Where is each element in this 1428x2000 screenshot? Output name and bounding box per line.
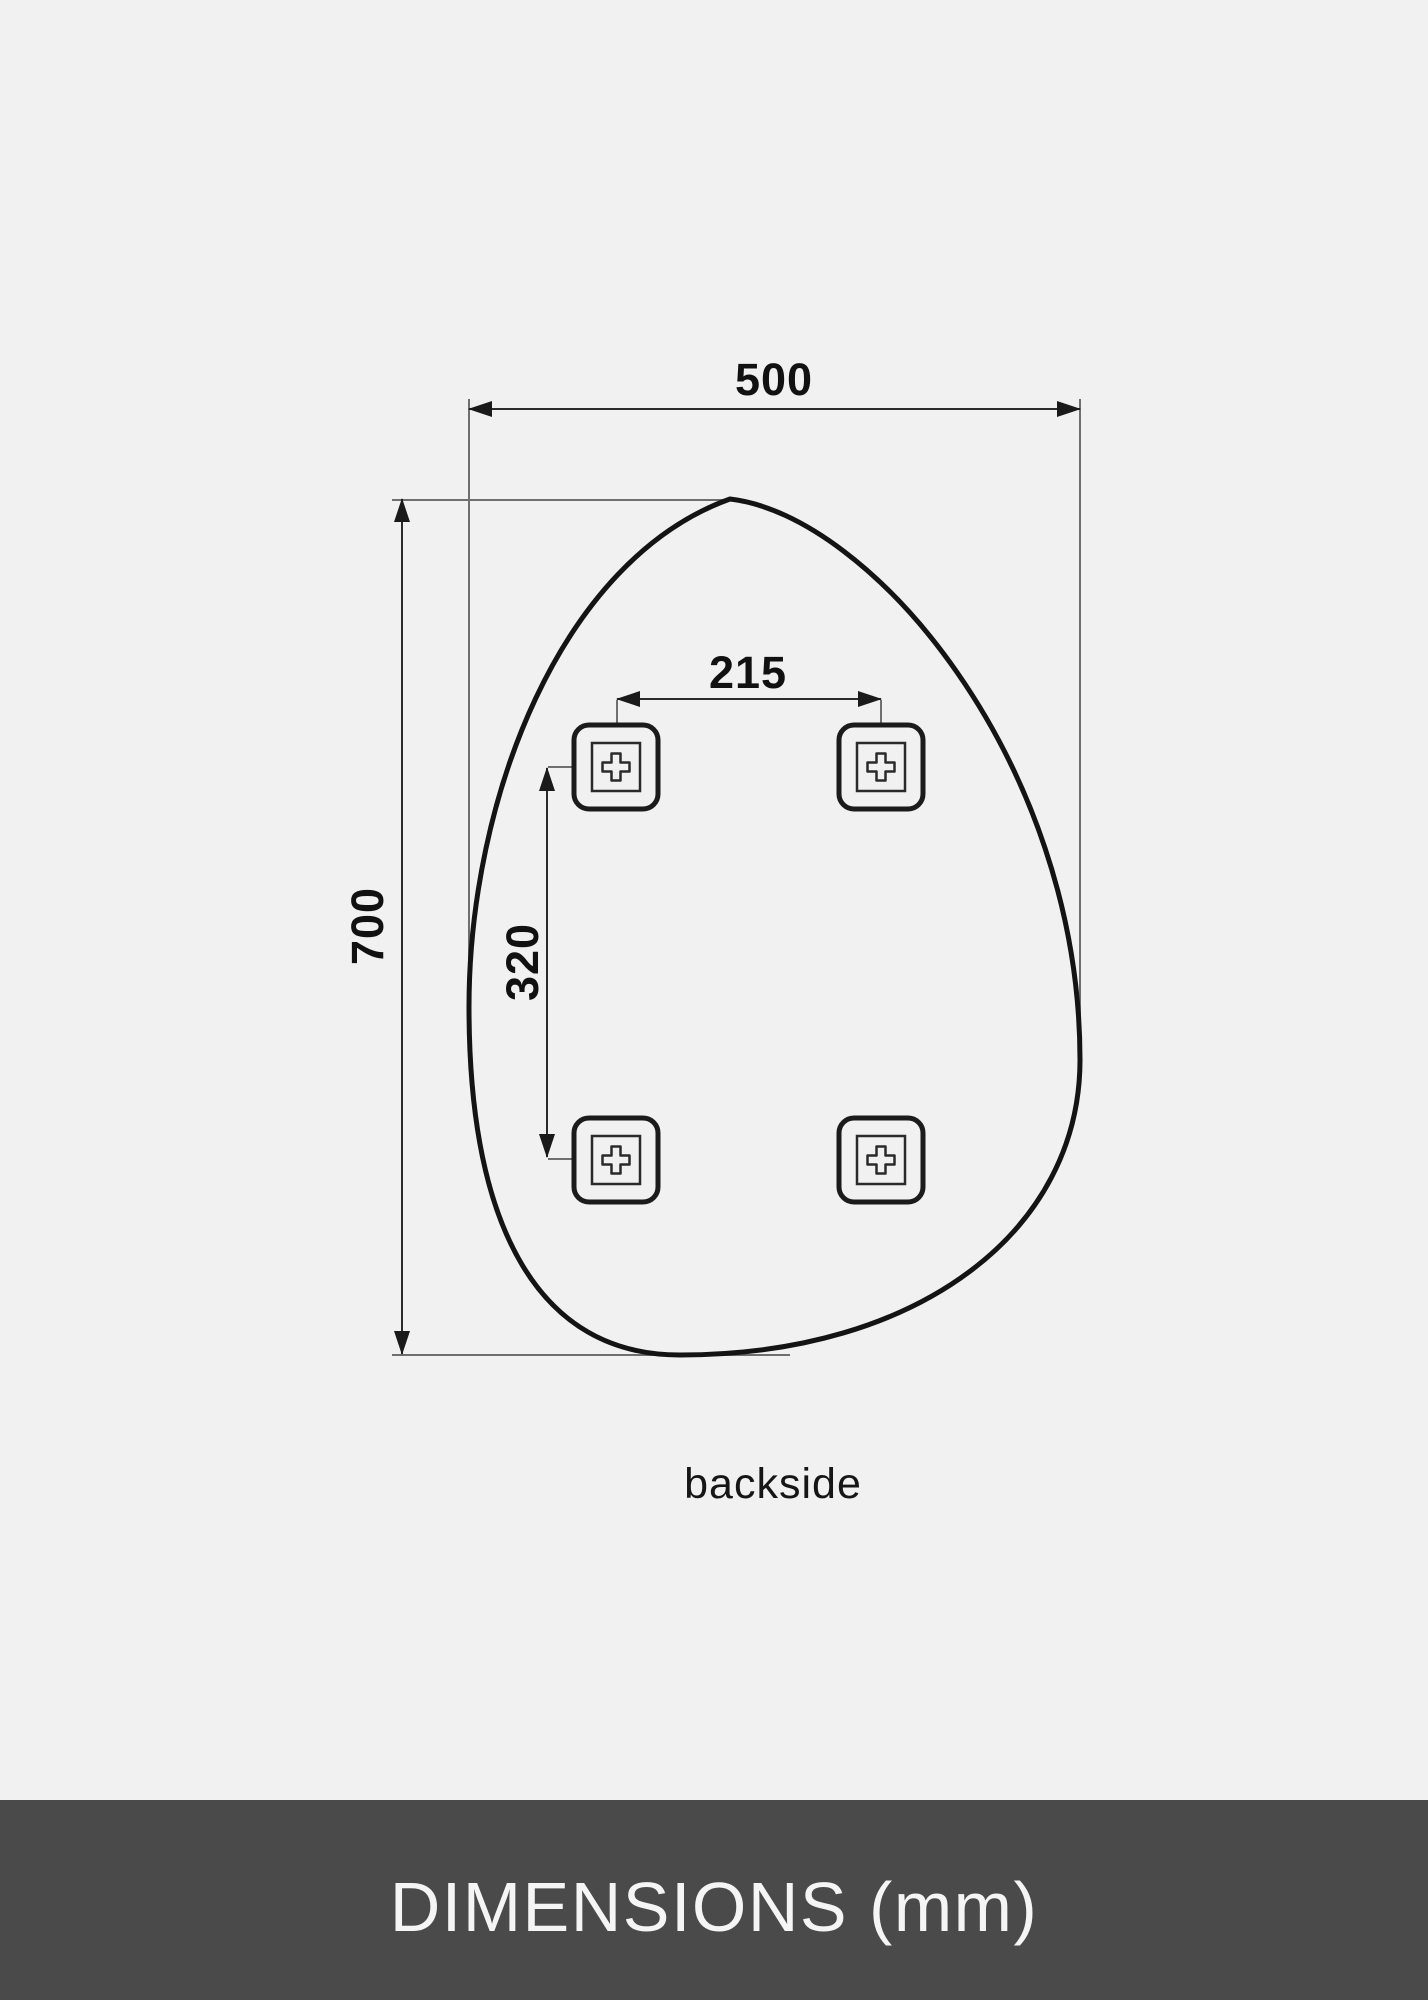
screw-cross-icon xyxy=(868,1147,895,1174)
footer-bar: DIMENSIONS (mm) xyxy=(0,1800,1428,2000)
bracket-inner-plate xyxy=(857,743,905,791)
mount-bracket-bottom-right xyxy=(839,1118,923,1202)
screw-cross-icon xyxy=(603,1147,630,1174)
bracket-inner-plate xyxy=(857,1136,905,1184)
bracket-outer-frame xyxy=(839,1118,923,1202)
height-dimension-label: 700 xyxy=(342,887,393,965)
mount-bracket-bottom-left xyxy=(574,1118,658,1202)
footer-title: DIMENSIONS (mm) xyxy=(390,1867,1039,1947)
bracket-outer-frame xyxy=(574,725,658,809)
bracket-inner-plate xyxy=(592,1136,640,1184)
bracket-outer-frame xyxy=(574,1118,658,1202)
mirror-dimension-diagram: 500 215 700 320 backside xyxy=(0,0,1428,1800)
mount-horizontal-dimension-label: 215 xyxy=(709,647,787,698)
width-dimension-label: 500 xyxy=(735,354,813,405)
dimension-sheet: 500 215 700 320 backside DIMENSIONS (mm) xyxy=(0,0,1428,2000)
bracket-inner-plate xyxy=(592,743,640,791)
mirror-shape-outline xyxy=(469,499,1080,1355)
screw-cross-icon xyxy=(603,754,630,781)
backside-caption: backside xyxy=(684,1460,862,1508)
bracket-outer-frame xyxy=(839,725,923,809)
screw-cross-icon xyxy=(868,754,895,781)
mount-bracket-top-right xyxy=(839,725,923,809)
mount-bracket-top-left xyxy=(574,725,658,809)
mount-vertical-dimension-label: 320 xyxy=(497,923,548,1001)
